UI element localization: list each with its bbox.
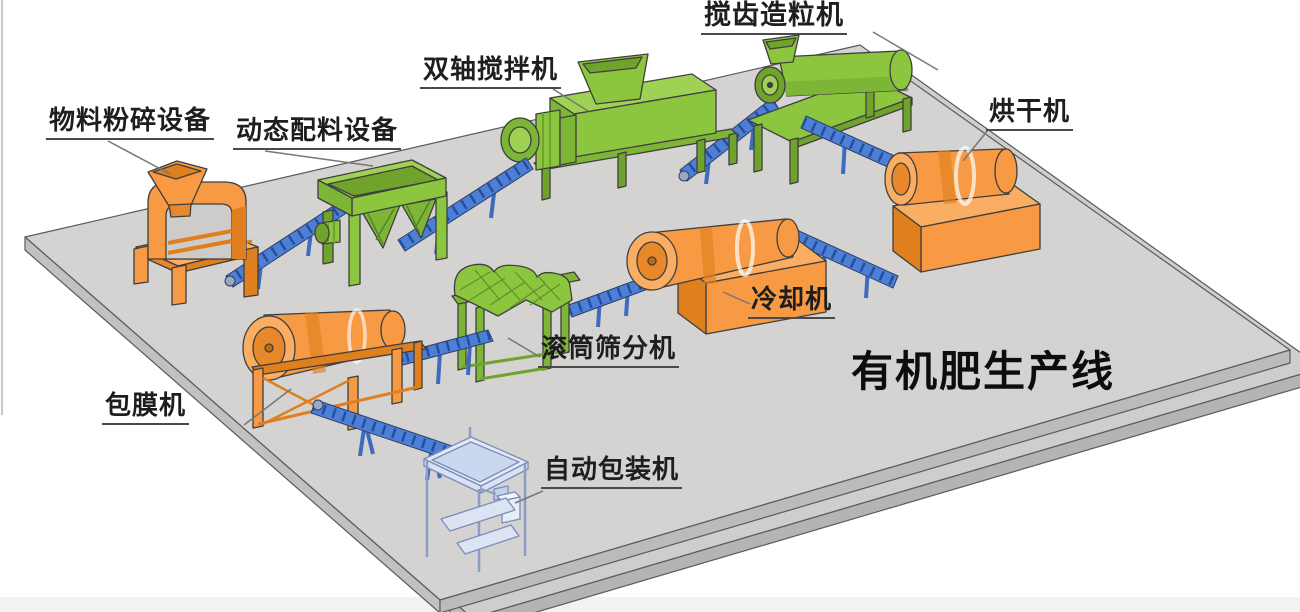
label-crusher: 物料粉碎设备 [46, 108, 214, 140]
label-batching: 动态配料设备 [233, 118, 401, 150]
label-granulator: 搅齿造粒机 [701, 2, 847, 35]
diagram-canvas [0, 0, 1300, 612]
dryer-machine [885, 148, 1040, 272]
page-title: 有机肥生产线 [851, 338, 1115, 399]
label-cooler: 冷却机 [748, 287, 835, 319]
label-mixer: 双轴搅拌机 [420, 57, 561, 89]
label-packer: 自动包装机 [541, 457, 682, 489]
label-coater: 包膜机 [102, 393, 189, 425]
floor-strip [0, 597, 1300, 612]
label-screener: 滚筒筛分机 [538, 336, 679, 368]
label-dryer: 烘干机 [986, 99, 1073, 131]
production-line-diagram: 物料粉碎设备 动态配料设备 双轴搅拌机 搅齿造粒机 烘干机 冷却机 滚筒筛分机 … [0, 0, 1300, 612]
